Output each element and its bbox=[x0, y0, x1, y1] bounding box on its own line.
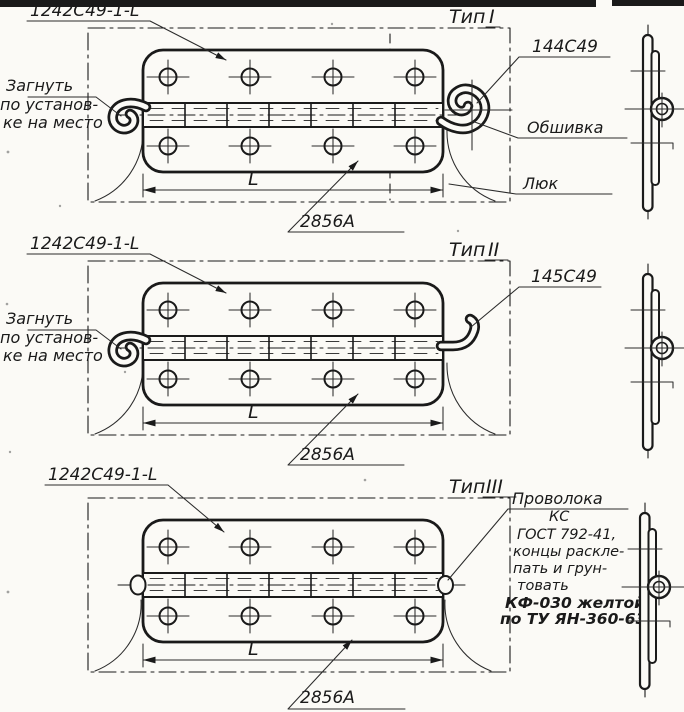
hatch-callout: Люк bbox=[449, 174, 612, 194]
hatch-label: Люк bbox=[522, 174, 559, 193]
bend-note-line: по установ- bbox=[0, 95, 98, 114]
hinge-type-3-view: L 1242С49-1-L Тип III Проволока КС ГОСТ … bbox=[45, 465, 684, 709]
skin-callout: Обшивка bbox=[472, 118, 627, 138]
pin-part-callout: 144С49 bbox=[477, 37, 610, 103]
bend-note: Загнуть по установ- ке на место bbox=[0, 309, 121, 365]
type-word: Тип bbox=[449, 476, 485, 498]
type-word: Тип bbox=[449, 6, 485, 28]
wire-note-line: ГОСТ 792-41, bbox=[517, 527, 616, 543]
type-numeral: II bbox=[488, 239, 500, 261]
pin-part-callout: 145С49 bbox=[471, 267, 601, 327]
leader-line bbox=[477, 57, 610, 103]
dimension-label: L bbox=[248, 168, 259, 190]
wire-note-line: Проволока bbox=[512, 489, 603, 508]
dimension-label: L bbox=[248, 638, 259, 660]
hinge-pin bbox=[118, 573, 470, 597]
hinge-side-view-1 bbox=[625, 25, 684, 219]
hinge-side-view-2 bbox=[625, 264, 684, 458]
part-number-label: 1242С49-1-L bbox=[30, 234, 139, 254]
pin-part-label: 145С49 bbox=[531, 267, 597, 287]
type-label: Тип III bbox=[449, 476, 516, 498]
part-number-label: 1242С49-1-L bbox=[30, 1, 139, 21]
leader-line bbox=[471, 287, 601, 327]
type-word: Тип bbox=[449, 239, 485, 261]
skin-label: Обшивка bbox=[527, 118, 603, 137]
pin-part-label: 144С49 bbox=[532, 37, 598, 57]
type-numeral: I bbox=[489, 6, 495, 28]
detail-callout: 2856А bbox=[288, 640, 405, 709]
hinge-drawing-canvas: L 1242С49-1-L Тип I Загнуть по установ- … bbox=[0, 0, 684, 712]
type-numeral: III bbox=[486, 476, 503, 498]
wire-note-line: концы раскле- bbox=[513, 544, 624, 560]
wire-note-line: пать и грун- bbox=[513, 561, 607, 577]
bend-note-line: ке на место bbox=[3, 346, 103, 365]
wire-note: Проволока КС ГОСТ 792-41, концы раскле- … bbox=[448, 489, 646, 628]
bend-note-line: по установ- bbox=[0, 328, 98, 347]
technical-drawing-sheet: L 1242С49-1-L Тип I Загнуть по установ- … bbox=[0, 0, 684, 712]
bent-wire-hook-right bbox=[441, 319, 475, 346]
hinge-type-1-view: L 1242С49-1-L Тип I Загнуть по установ- … bbox=[0, 1, 684, 232]
hinge-type-2-view: L 1242С49-1-L Тип II Загнуть по установ-… bbox=[0, 234, 684, 465]
bent-wire-hook-left bbox=[113, 336, 146, 362]
dimension-label: L bbox=[248, 401, 259, 423]
type-label: Тип I bbox=[449, 6, 500, 28]
hinge-pin bbox=[118, 103, 470, 127]
wire-note-line: товать bbox=[517, 578, 569, 594]
bend-note-line: Загнуть bbox=[6, 309, 73, 328]
wire-note-line: КС bbox=[549, 509, 570, 525]
wire-note-line-bold: по ТУ ЯН-360-63 bbox=[500, 610, 646, 628]
hinge-pin bbox=[118, 336, 470, 360]
bend-note-line: ке на место bbox=[3, 113, 103, 132]
detail-label: 2856А bbox=[300, 688, 355, 708]
type-label: Тип II bbox=[449, 239, 508, 261]
bend-note: Загнуть по установ- ке на место bbox=[0, 76, 121, 132]
bend-note-line: Загнуть bbox=[6, 76, 73, 95]
part-number-label: 1242С49-1-L bbox=[48, 465, 157, 485]
detail-label: 2856А bbox=[300, 445, 355, 465]
detail-label: 2856А bbox=[300, 212, 355, 232]
bent-wire-hook-left bbox=[113, 103, 146, 129]
